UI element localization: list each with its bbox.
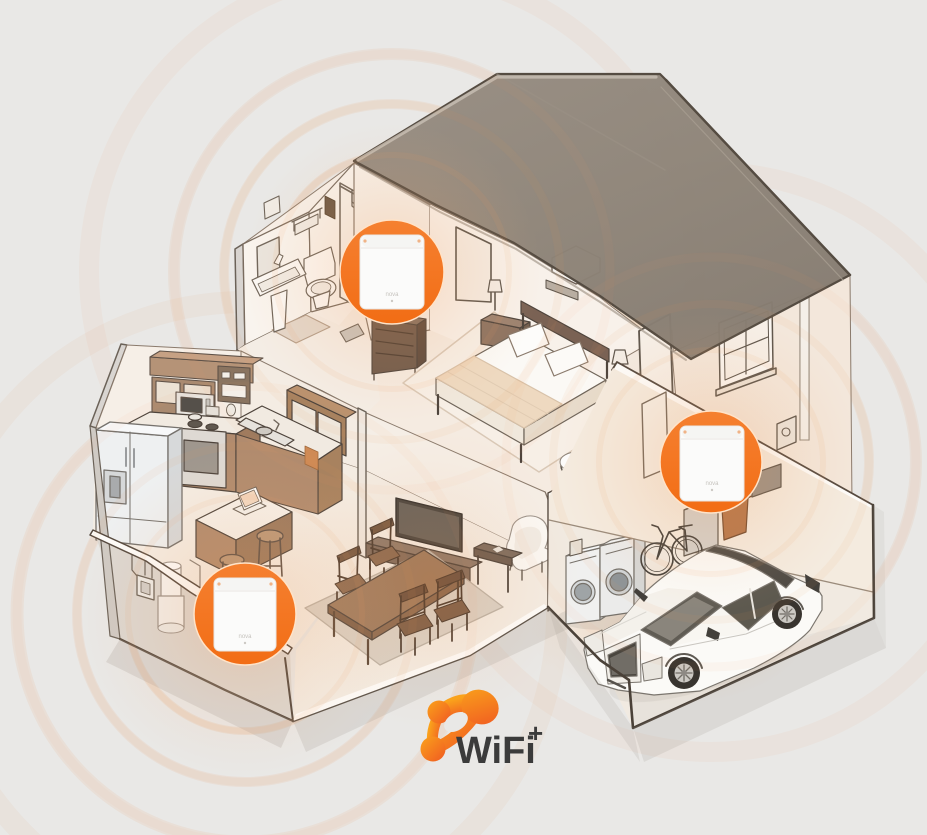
svg-text:+: + bbox=[528, 718, 543, 748]
svg-text:nova: nova bbox=[705, 481, 719, 487]
svg-text:nova: nova bbox=[238, 634, 252, 640]
svg-text:WiFi: WiFi bbox=[456, 730, 536, 772]
svg-text:nova: nova bbox=[385, 292, 399, 298]
